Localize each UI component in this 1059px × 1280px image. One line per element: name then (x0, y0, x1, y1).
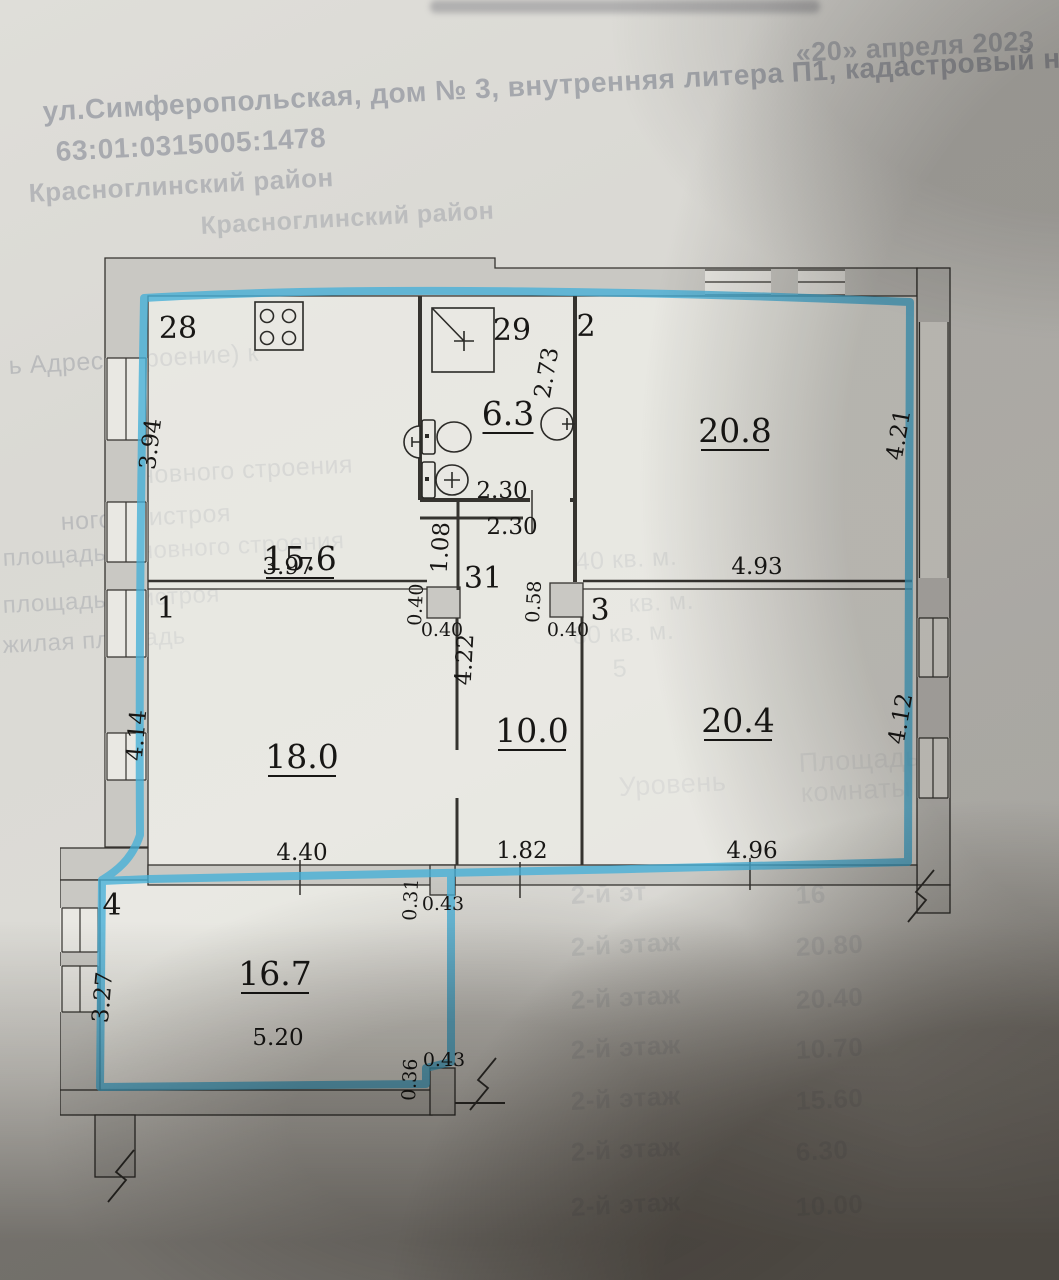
dimension-label: 2.30 (476, 478, 527, 504)
room-number-label: 28 (159, 311, 197, 346)
toilet-icon (422, 420, 471, 454)
dimension-label: 0.40 (547, 619, 589, 641)
toilet-icon (422, 462, 468, 498)
left-wall-stub (95, 1115, 135, 1177)
room-area-label: 18.0 (265, 737, 338, 776)
dimension-label: 0.43 (422, 893, 464, 915)
room-number-label: 31 (464, 561, 502, 596)
room-area-label: 10.0 (495, 711, 568, 750)
room-number-label: 4 (102, 888, 121, 923)
dimension-label: 0.43 (423, 1049, 465, 1071)
scanned-floorplan-photo: «20» апреля 2023 ул.Симферопольская, дом… (0, 0, 1059, 1280)
room-number-label: 3 (590, 593, 609, 628)
dimension-label: 4.93 (731, 554, 782, 580)
room4-bottom-wall (60, 1090, 432, 1115)
window-icon (798, 269, 845, 296)
stove-icon (255, 302, 303, 350)
window-icon (918, 738, 950, 798)
dimension-label: 5.20 (252, 1025, 303, 1051)
floor-plan: 282921313415.66.320.818.010.020.416.73.9… (60, 250, 960, 1210)
window-icon (60, 908, 99, 952)
dimension-label: 1.82 (496, 838, 547, 864)
room-area-label: 16.7 (238, 954, 311, 993)
dimension-label: 0.58 (522, 580, 546, 623)
dimension-label: 4.40 (276, 840, 327, 866)
right-wall-stub (917, 885, 950, 913)
address-line: ул.Симферопольская, дом № 3, внутренняя … (42, 43, 1059, 128)
plain-wall-segment (919, 322, 948, 578)
shower-icon (432, 308, 494, 372)
room-area-label: 6.3 (482, 394, 534, 433)
district-line: Красноглинский район (28, 162, 334, 209)
room-number-label: 2 (576, 309, 595, 344)
dimension-label: 0.36 (398, 1058, 422, 1101)
cutoff-header-text (430, 0, 820, 13)
room4-notch-wall (430, 1068, 455, 1115)
dimension-label: 3.97 (262, 554, 313, 580)
district-line: Красноглинский район (200, 197, 495, 241)
dimension-label: 0.31 (399, 878, 423, 921)
room-area-label: 20.4 (701, 701, 774, 740)
room-area-label: 20.8 (698, 411, 771, 450)
dimension-label: 4.14 (122, 709, 152, 762)
column-pillar (550, 583, 583, 617)
room-number-label: 1 (156, 591, 175, 626)
cadastral-number: 63:01:0315005:1478 (55, 122, 327, 168)
dimension-label: 2.30 (486, 514, 537, 540)
window-icon (918, 618, 950, 677)
dimension-label: 4.96 (726, 838, 777, 864)
dimension-label: 3.27 (88, 971, 118, 1024)
dimension-label: 1.08 (427, 521, 456, 574)
room-number-label: 29 (493, 313, 531, 348)
column-pillar (427, 587, 460, 618)
dimension-label: 4.22 (451, 633, 480, 686)
